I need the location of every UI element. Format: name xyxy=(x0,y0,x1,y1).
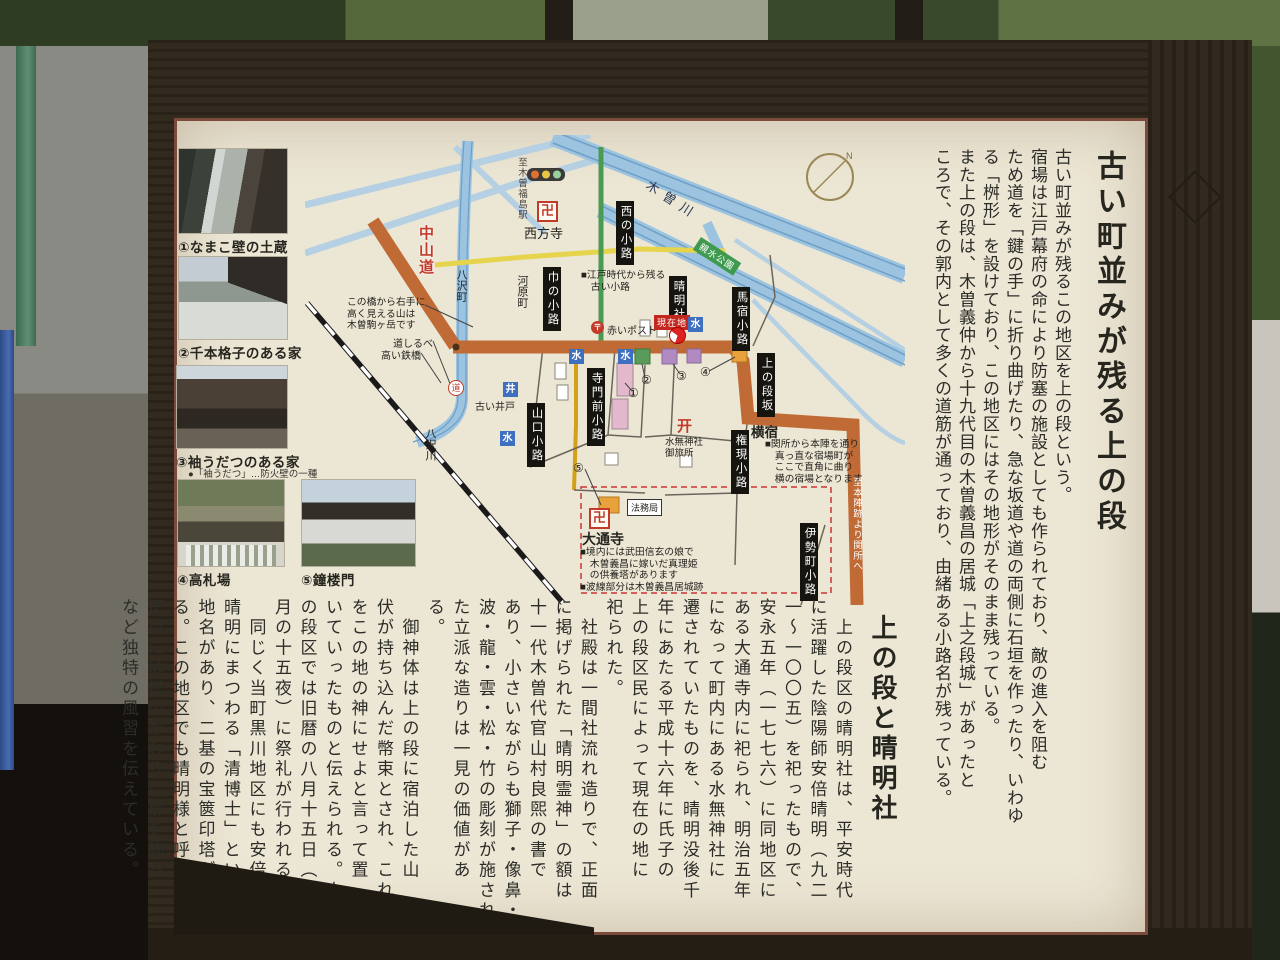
text-line: る「桝形」を設けており、この地区にはその地形がそのまま残っている。 xyxy=(978,148,1000,840)
text-line: 十一代木曽代官山村良煕の書で xyxy=(525,598,549,938)
sign-title: 古い町並みが残る上の段 xyxy=(1082,150,1134,550)
nakasendo-label: 中山道 xyxy=(415,225,436,276)
water-marker: 水 xyxy=(688,317,703,332)
iron-bridge-label: 高い鉄橋 xyxy=(381,347,421,362)
intro-text: 古い町並みが残るこの地区を上の段という。宿場は江戸幕府の命により防塞の施設として… xyxy=(933,148,1073,840)
map-number-2: ② xyxy=(641,373,652,387)
bridge-note: この橋から右手に高く見える山は木曽駒ヶ岳です xyxy=(347,297,425,332)
map-number-1: ① xyxy=(628,386,639,400)
text-line: など独特の風習を伝えている。 xyxy=(117,598,141,938)
text-line: ■江戸時代から残る xyxy=(581,270,665,282)
background-foliage xyxy=(1248,46,1280,960)
photo-caption: ④高札場 xyxy=(177,569,231,589)
text-line: た立派な造りは一見の価値があ xyxy=(448,598,472,938)
yasawa-river-label: 八沢川 xyxy=(422,428,438,461)
text-line: 一〜一〇〇五）を祀ったもので、 xyxy=(780,598,804,938)
text-line: ■波線部分は木曽義昌居城跡 xyxy=(580,582,703,594)
text-line: 宿場は江戸幕府の命により防塞の施設としても作られており、敵の進入を阻む xyxy=(1026,148,1048,840)
water-marker: 水 xyxy=(618,349,633,364)
text-line: 祀られた。 xyxy=(601,598,625,938)
text-line: 波・龍・雲・松・竹の彫刻が施され xyxy=(474,598,498,938)
green-pipe xyxy=(16,46,36,346)
saihoji-manji-icon: 卍 xyxy=(537,201,558,222)
map-number-3: ③ xyxy=(676,369,687,383)
daitsuji-note: ■境内には武田信玄の娘で 木曽義昌に嫁いだ真理姫 の供養塔があります■波線部分は… xyxy=(580,547,703,593)
otabisho-label: 御旅所 xyxy=(665,445,694,459)
water-marker: 水 xyxy=(500,431,515,446)
signboard-photo: ①なまこ壁の土蔵 ②千本格子のある家 ③袖うだつのある家 ●「袖うだつ」…防火壁… xyxy=(0,0,1280,960)
to-honjin-label: 至本陣跡より関所へ xyxy=(849,477,863,572)
text-line: 真っ直な宿場町が xyxy=(765,451,863,463)
text-line: 上の段区民によって現在の地に xyxy=(627,598,651,938)
text-line: の供養塔があります xyxy=(580,570,703,582)
text-line: る。 xyxy=(423,598,447,938)
photo-caption: ②千本格子のある家 xyxy=(178,342,302,362)
compass-north-label: N xyxy=(846,151,853,161)
frame-top-beam xyxy=(148,40,1252,118)
text-line: 高く見える山は xyxy=(347,309,425,321)
edo-lane-legend: ■江戸時代から残る 古い小路 xyxy=(581,270,665,293)
text-line: 安永五年（一七七六）に同地区に xyxy=(754,598,778,938)
map-number-5: ⑤ xyxy=(573,461,584,475)
photo-kosatsuba xyxy=(177,479,285,567)
road-junction-dot xyxy=(453,344,460,351)
text-line: 上の段区の晴明社は、平安時代 xyxy=(831,598,855,938)
post-mark-icon: 〒 xyxy=(591,321,604,334)
text-line: ころで、その郭内として多くの道筋が通っており、由緒ある小路名が残っている。 xyxy=(930,148,952,840)
torii-icon: 开 xyxy=(677,415,692,436)
text-line: に掲げられた「晴明霊神」の額は xyxy=(550,598,574,938)
homukyoku-label: 法務局 xyxy=(627,499,662,516)
photo-senbon-koshi xyxy=(178,256,288,340)
well-marker: 井 xyxy=(503,382,518,397)
text-line: 木曽駒ヶ岳です xyxy=(347,320,425,332)
blue-pole xyxy=(0,330,14,770)
water-marker: 水 xyxy=(569,349,584,364)
photo-sode-udatsu xyxy=(176,365,288,449)
text-line: ■境内には武田信玄の娘で xyxy=(580,547,703,559)
text-line: 遷されていたものを、晴明没後千 xyxy=(678,598,702,938)
text-line: この橋から右手に xyxy=(347,297,425,309)
daitsuji-manji-icon: 卍 xyxy=(589,508,610,529)
text-line: ある大通寺内に祀られ、明治五年 xyxy=(729,598,753,938)
yasawa-cho-label: 八沢町 xyxy=(453,269,469,302)
text-line: 古い町並みが残るこの地区を上の段という。 xyxy=(1050,148,1072,840)
text-line: 年にあたる平成十六年に氏子の xyxy=(652,598,676,938)
daitsuji-label: 大通寺 xyxy=(582,529,624,549)
gongen-koji-label: 権現小路 xyxy=(731,430,749,494)
uenodan-zaka-label: 上の段坂 xyxy=(757,353,775,417)
text-line: 正月には松のかわりに柳を飾る xyxy=(142,598,166,938)
text-line: 伏が持ち込んだ幣束とされ、これ xyxy=(372,598,396,938)
text-line: 古い小路 xyxy=(581,282,665,294)
text-line: 御神体は上の段に宿泊した山 xyxy=(397,598,421,938)
photo-caption-note: ●「袖うだつ」…防火壁の一種 xyxy=(188,466,317,480)
signpost-marker: 道 xyxy=(448,380,464,396)
town-map: 木曽川 親水公園 N 至木曽福島駅 卍 西方寺 西の小路 中山道 八沢町 河原町… xyxy=(305,135,905,605)
red-post-label: 赤いポスト xyxy=(607,322,657,337)
text-line: に活躍した陰陽師安倍晴明（九二 xyxy=(805,598,829,938)
text-line: ■関所から本陣を通り xyxy=(765,439,863,451)
photo-namako-wall xyxy=(178,148,288,234)
yamaguchi-koji-label: 山口小路 xyxy=(527,403,545,467)
current-location-marker xyxy=(669,327,686,344)
text-line: になって町内にある水無神社に xyxy=(703,598,727,938)
umayado-koji-label: 馬宿小路 xyxy=(732,287,750,351)
haba-no-koji-label: 巾の小路 xyxy=(543,267,561,331)
to-station-label: 至木曽福島駅 xyxy=(514,157,528,220)
teramonzen-koji-label: 寺門前小路 xyxy=(587,368,605,446)
text-line: ため道を「鍵の手」に折り曲げたり、急な坂道や道の両側に石垣を作ったり、いわゆ xyxy=(1002,148,1024,840)
text-line: 社殿は一間社流れ造りで、正面 xyxy=(576,598,600,938)
traffic-light-icon xyxy=(527,168,565,181)
text-line: あり、小さいながらも獅子・像鼻・ xyxy=(499,598,523,938)
saihoji-label: 西方寺 xyxy=(524,223,563,242)
nishi-no-koji-label: 西の小路 xyxy=(616,201,634,265)
map-number-4: ④ xyxy=(700,365,711,379)
text-line: 木曽義昌に嫁いだ真理姫 xyxy=(580,559,703,571)
photo-caption: ①なまこ壁の土蔵 xyxy=(178,236,288,256)
kawara-machi-label: 河原町 xyxy=(514,275,530,308)
old-well-label: 古い井戸 xyxy=(475,398,515,413)
section-heading: 上の段と晴明社 xyxy=(864,598,900,938)
text-line: ここで直角に曲り xyxy=(765,462,863,474)
text-line: また上の段は、木曽義仲から十九代目の木曽義昌の居城「上之段城」があったと xyxy=(954,148,976,840)
isemachi-koji-label: 伊勢町小路 xyxy=(800,523,818,601)
yokojuku-label: 横宿 xyxy=(751,421,778,441)
